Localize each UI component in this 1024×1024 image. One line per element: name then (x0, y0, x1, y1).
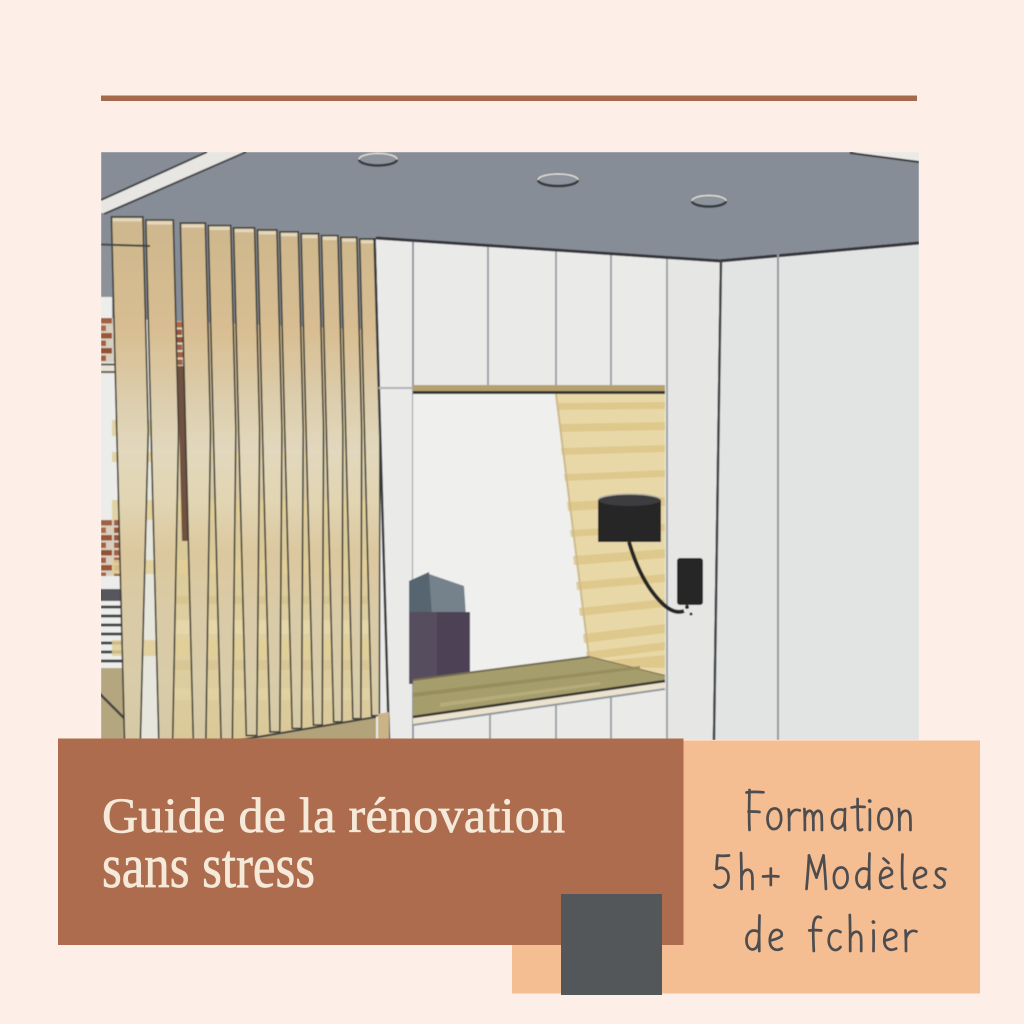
svg-text:sans stress: sans stress (102, 833, 315, 901)
